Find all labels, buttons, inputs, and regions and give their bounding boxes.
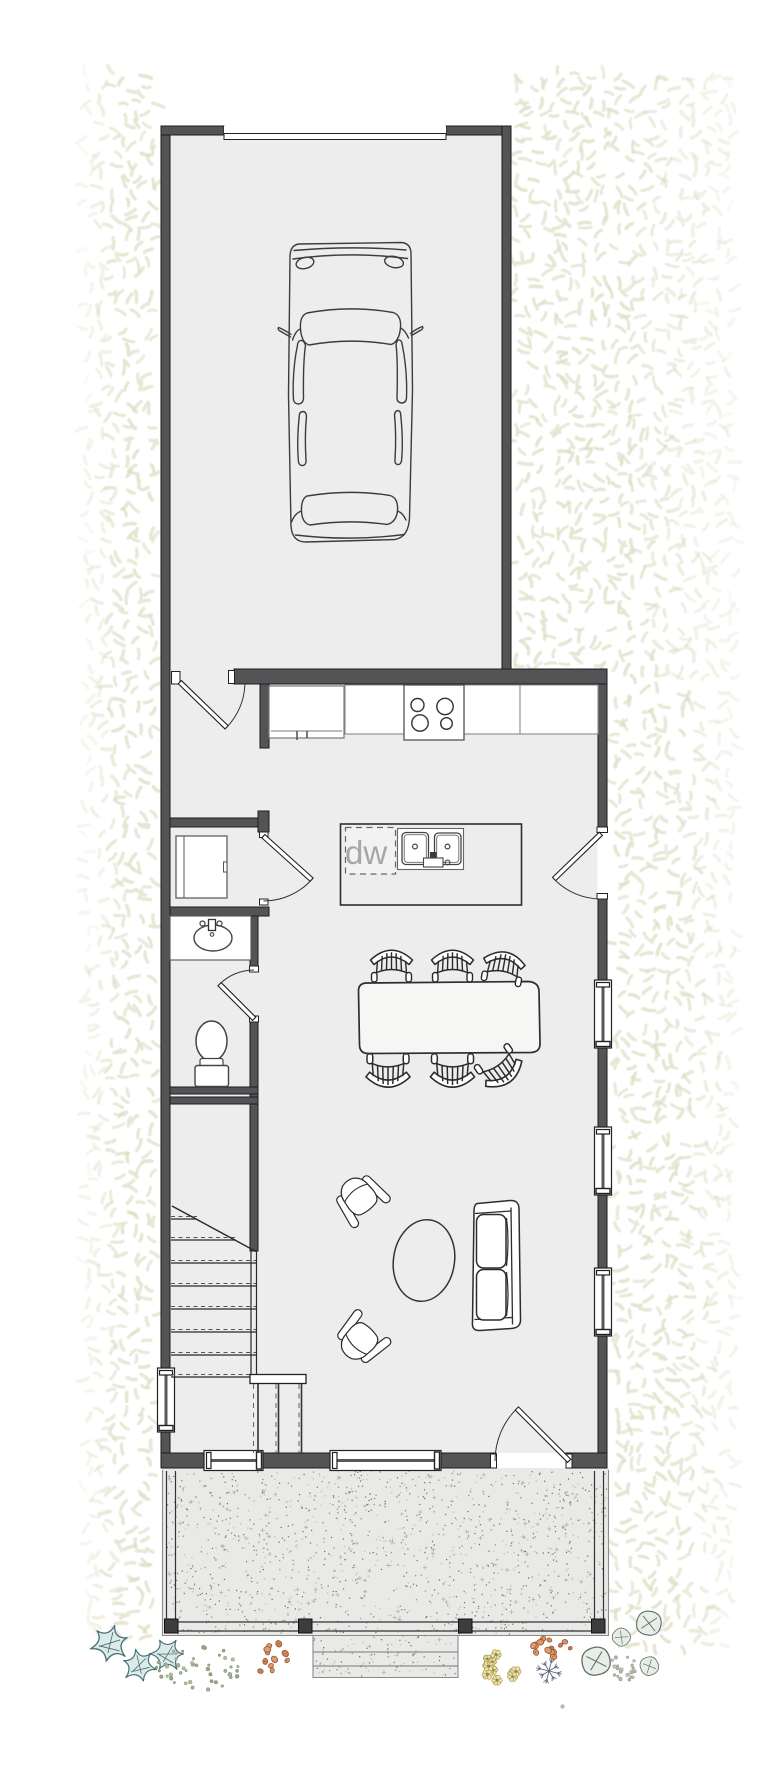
svg-text:dw: dw [345,834,387,871]
